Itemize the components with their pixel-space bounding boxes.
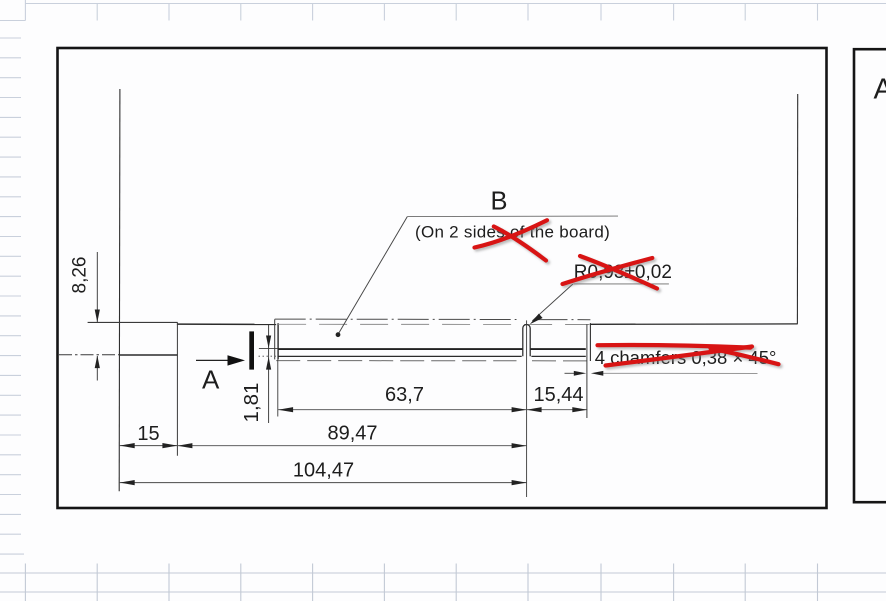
svg-text:B: B [491,187,508,215]
svg-text:89,47: 89,47 [327,422,377,444]
svg-text:8,26: 8,26 [70,257,91,294]
svg-text:15: 15 [137,423,159,445]
svg-text:63,7: 63,7 [385,384,424,406]
svg-text:1,81: 1,81 [240,383,263,423]
svg-text:15,44: 15,44 [533,384,583,406]
svg-text:A: A [874,74,886,106]
svg-text:104,47: 104,47 [293,460,354,482]
svg-text:A: A [202,364,220,394]
